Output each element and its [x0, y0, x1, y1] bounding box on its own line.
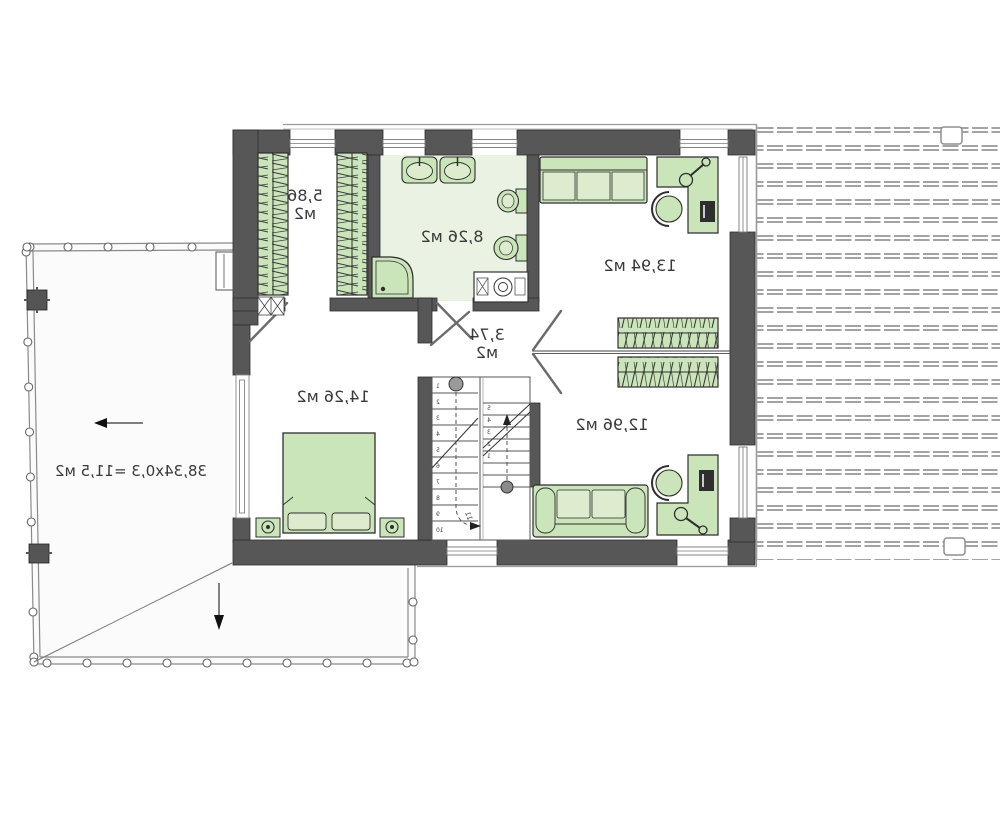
railing-baluster	[26, 473, 34, 481]
wardrobe	[618, 357, 718, 387]
shelf-unit	[258, 297, 284, 315]
stair-step-number: 2	[487, 442, 491, 448]
bedroom-left-area-label: 14,26 м2	[268, 388, 398, 406]
terrace-area-label: 38,34x0,3 =11,5 м2	[36, 463, 226, 480]
stair-newel-post	[501, 481, 513, 493]
nightstand	[256, 518, 280, 537]
railing-baluster	[188, 243, 196, 251]
railing-baluster	[25, 383, 33, 391]
monitor-icon	[700, 201, 715, 222]
terrace-post	[26, 544, 52, 563]
bedroom-top-right-area-label: 13,94 м2	[575, 257, 705, 275]
wardrobe	[618, 318, 718, 348]
stair-step-number: 7	[436, 480, 440, 486]
roof-vent-icon	[944, 538, 965, 555]
sofa	[540, 157, 647, 203]
shower	[372, 257, 413, 298]
stair-step-number: 5	[487, 406, 491, 412]
hall-area-label: 3,74 м2	[452, 326, 522, 363]
stair-step-number: 9	[436, 512, 440, 518]
stair-step-number: 3	[436, 416, 440, 422]
railing-baluster	[363, 659, 371, 667]
railing-baluster	[123, 659, 131, 667]
railing-baluster	[29, 608, 37, 616]
bedroom-bottom-right-area-label: 12,96 м2	[547, 416, 677, 434]
stair-step-number: 4	[487, 418, 491, 424]
closet-area-label: 5,86 м2	[272, 187, 338, 224]
railing-baluster	[24, 338, 32, 346]
stair-step-number: 8	[436, 496, 440, 502]
washing-machine	[474, 272, 528, 302]
stair-step-number: 5	[436, 448, 440, 454]
railing-baluster	[104, 243, 112, 251]
railing-baluster	[163, 659, 171, 667]
railing-baluster	[27, 518, 35, 526]
railing-baluster	[146, 243, 154, 251]
terrace-post	[24, 287, 50, 313]
railing-baluster	[409, 636, 417, 644]
sofa	[533, 485, 648, 537]
sink	[440, 157, 475, 183]
nightstand	[380, 518, 404, 537]
bidet	[498, 189, 528, 213]
staircase	[432, 377, 530, 540]
stair-newel-post	[449, 377, 463, 391]
bathroom-area-label: 8,26 м2	[392, 228, 512, 246]
railing-baluster	[283, 659, 291, 667]
monitor-icon	[699, 470, 714, 491]
floor-plan-drawing	[0, 0, 1000, 822]
stair-step-number: 4	[436, 432, 440, 438]
sink	[402, 157, 437, 183]
railing-baluster	[243, 659, 251, 667]
pillow	[332, 513, 370, 530]
roof-vent-icon	[941, 127, 962, 144]
floor-plan-canvas: 5,86 м2 8,26 м2 13,94 м2 3,74 м2 14,26 м…	[0, 0, 1000, 822]
railing-baluster	[83, 659, 91, 667]
roof-hatch-area	[757, 125, 1000, 560]
railing-baluster	[409, 598, 417, 606]
pillow	[288, 513, 326, 530]
stair-step-number: 10	[436, 528, 444, 534]
railing-baluster	[43, 659, 51, 667]
stair-step-number: 2	[436, 400, 440, 406]
stair-step-number: 6	[436, 464, 440, 470]
wardrobe	[258, 153, 288, 295]
railing-baluster	[26, 428, 34, 436]
terrace-window	[216, 252, 233, 290]
balcony-window	[236, 375, 249, 518]
stair-step-number: 3	[487, 430, 491, 436]
railing-baluster	[203, 659, 211, 667]
stair-step-number: 1	[436, 384, 440, 390]
railing-baluster	[410, 658, 418, 666]
railing-baluster	[64, 243, 72, 251]
stair-step-number: 1	[487, 454, 491, 460]
railing-baluster	[323, 659, 331, 667]
double-bed	[283, 433, 375, 533]
wardrobe	[337, 153, 367, 295]
railing-baluster	[23, 243, 31, 251]
